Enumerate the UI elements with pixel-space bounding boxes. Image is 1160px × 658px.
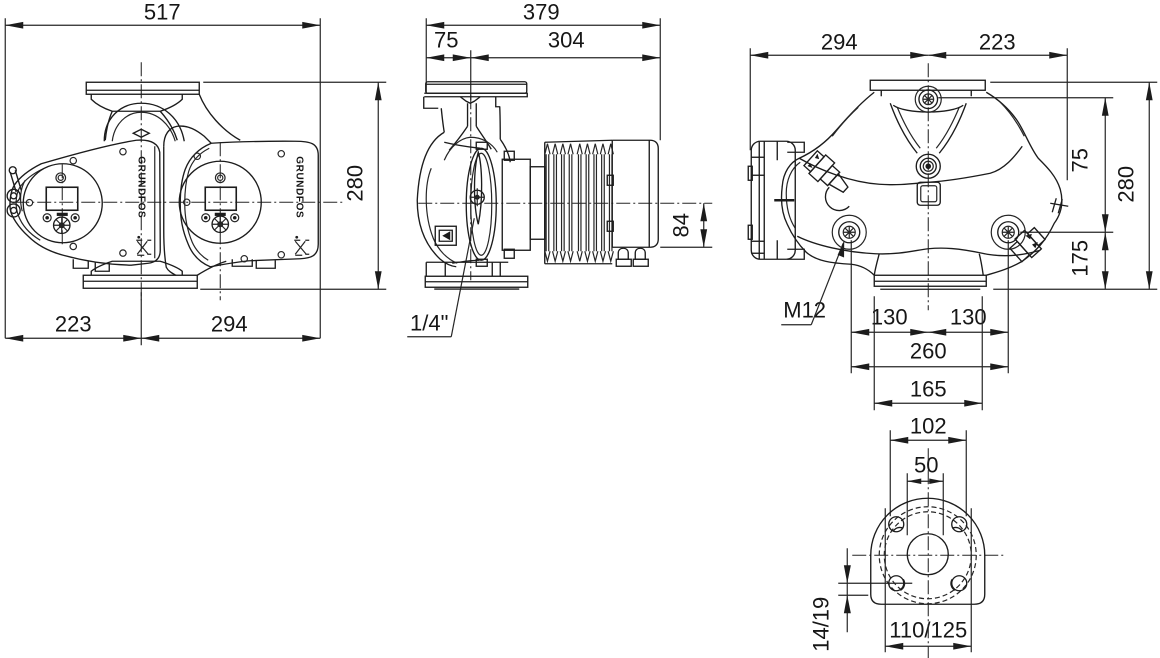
svg-text:102: 102 [910,413,947,438]
svg-text:130: 130 [871,304,908,329]
svg-text:165: 165 [910,376,947,401]
svg-text:294: 294 [821,29,858,54]
svg-text:50: 50 [914,452,938,477]
svg-text:1/4": 1/4" [410,310,448,335]
svg-text:280: 280 [342,165,367,202]
svg-text:304: 304 [548,27,585,52]
svg-text:260: 260 [910,338,947,363]
svg-text:84: 84 [668,213,693,237]
svg-text:379: 379 [523,0,560,24]
svg-text:GRUNDFOS: GRUNDFOS [135,156,146,218]
svg-text:223: 223 [979,29,1016,54]
svg-text:130: 130 [950,304,987,329]
svg-text:280: 280 [1113,166,1138,203]
svg-text:GRUNDFOS: GRUNDFOS [293,156,304,218]
svg-text:M12: M12 [783,297,826,322]
svg-text:517: 517 [144,0,181,24]
svg-text:294: 294 [211,311,248,336]
svg-text:75: 75 [434,27,458,52]
svg-text:14/19: 14/19 [808,597,833,652]
svg-text:223: 223 [55,311,92,336]
svg-text:75: 75 [1067,148,1092,172]
svg-text:175: 175 [1067,240,1092,277]
